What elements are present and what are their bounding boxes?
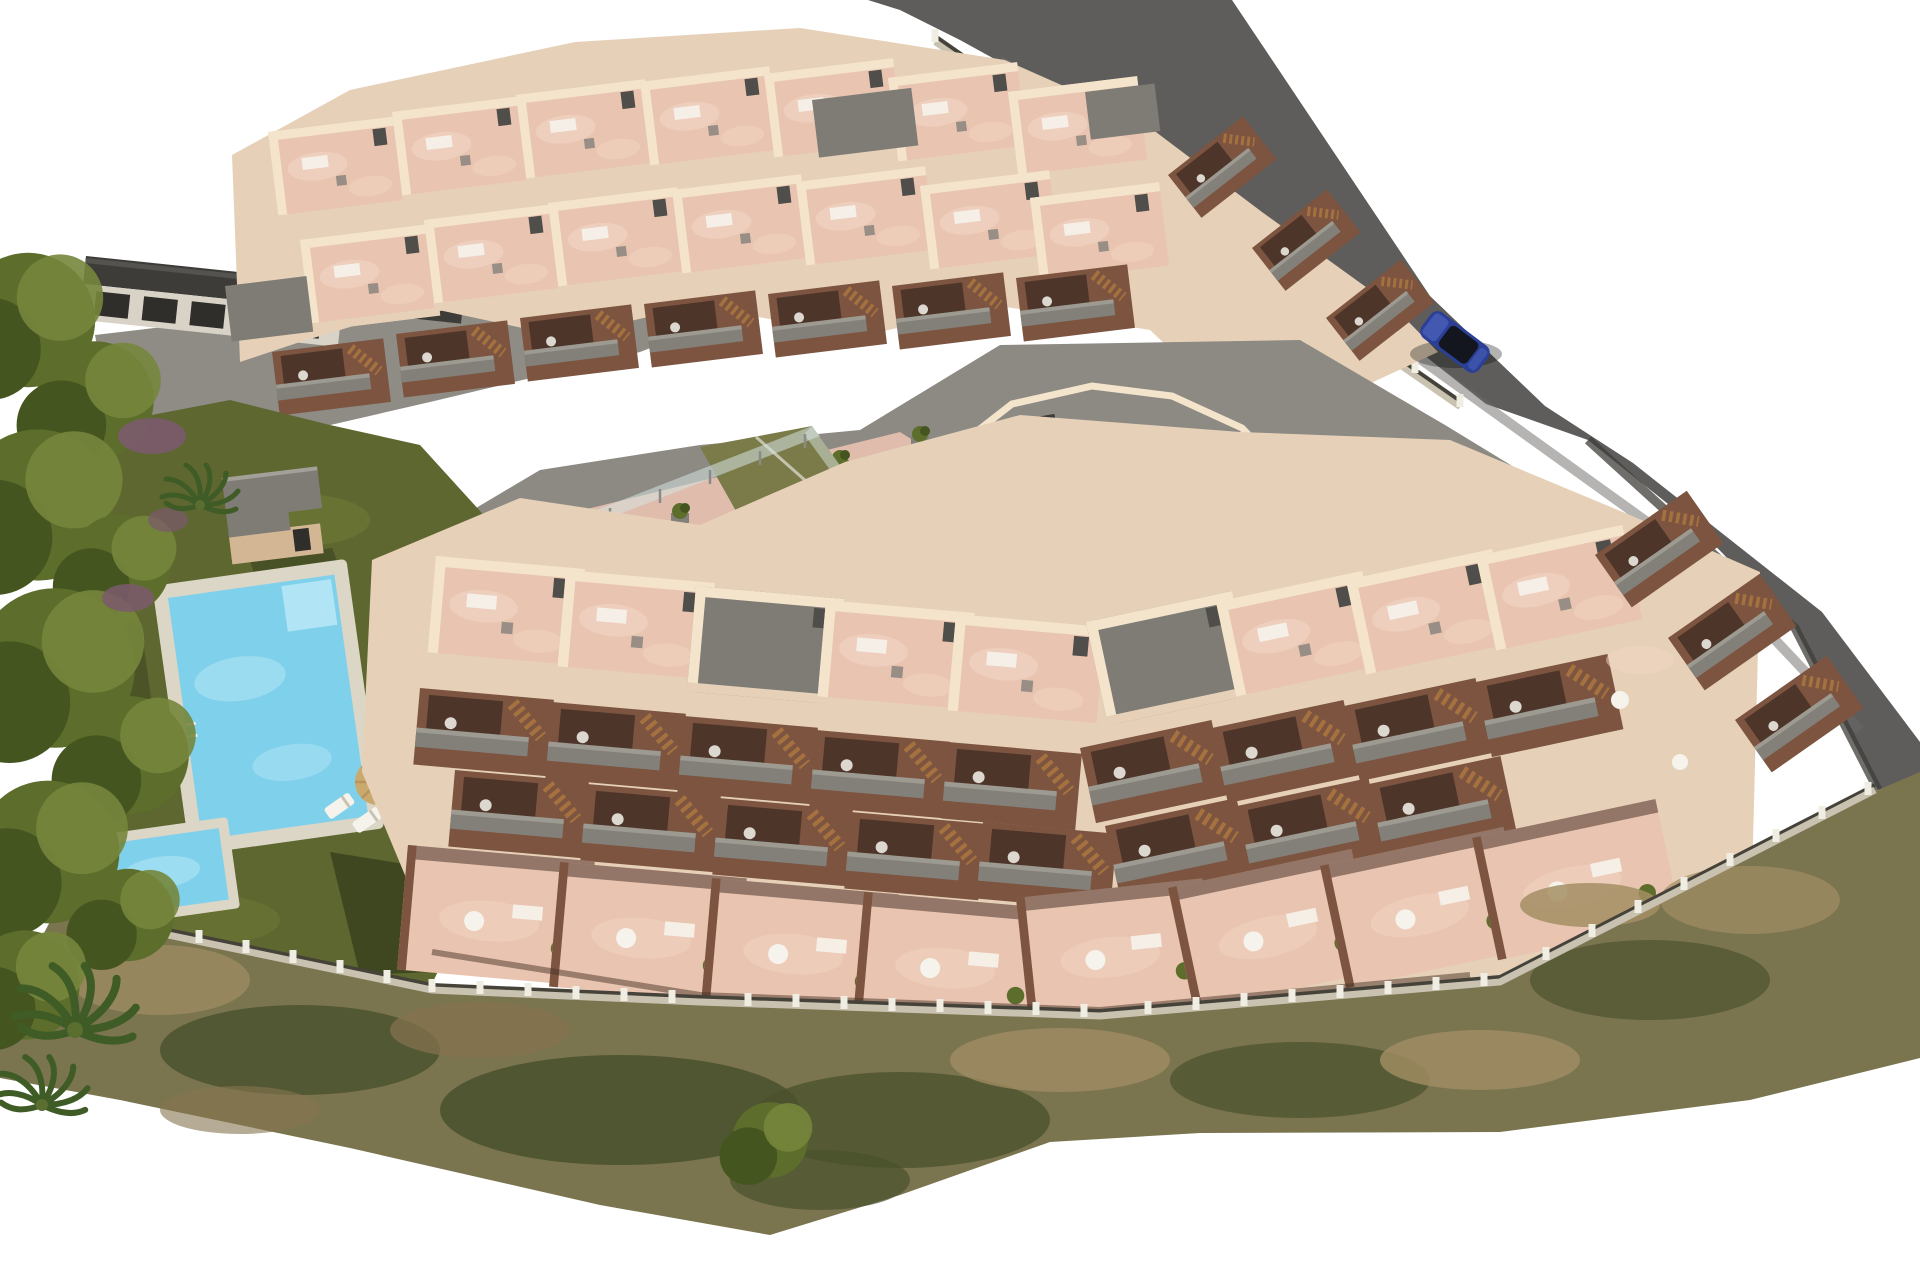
pool-house-door xyxy=(293,528,312,552)
terrace-furniture xyxy=(1611,691,1629,709)
purple-shrub xyxy=(118,418,186,454)
purple-shrub xyxy=(148,508,188,532)
terrace-furniture xyxy=(1672,754,1688,770)
pool-steps xyxy=(281,579,337,632)
front-apartment-block xyxy=(362,415,1760,1033)
aerial-render xyxy=(0,0,1920,1280)
main-pool xyxy=(152,559,384,856)
render-canvas xyxy=(0,0,1920,1280)
purple-shrub xyxy=(102,584,154,612)
